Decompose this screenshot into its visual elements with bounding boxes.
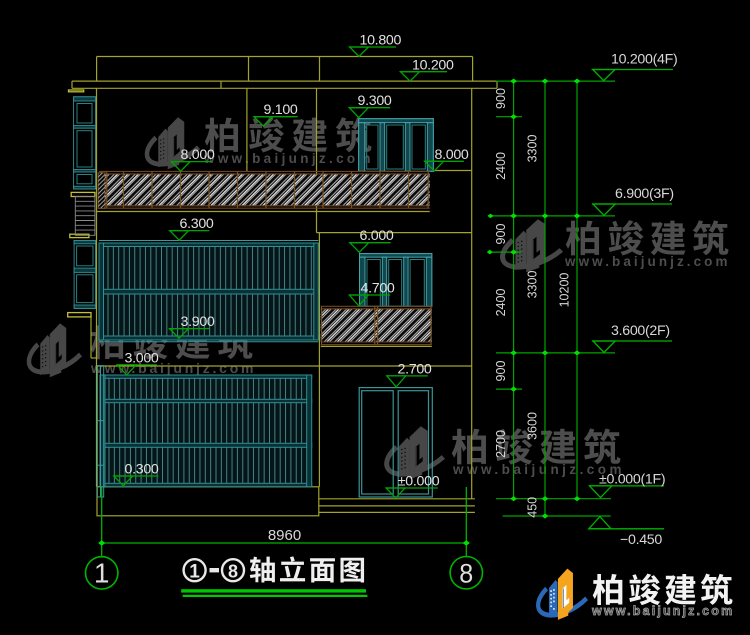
svg-text:3.900: 3.900 bbox=[181, 314, 215, 330]
svg-text:www.baijunjz.com: www.baijunjz.com bbox=[452, 462, 623, 477]
svg-text:8: 8 bbox=[459, 558, 473, 589]
svg-text:3300: 3300 bbox=[526, 271, 540, 299]
svg-text:3600: 3600 bbox=[526, 412, 540, 440]
svg-text:6.900(3F): 6.900(3F) bbox=[615, 186, 674, 202]
svg-text:2700: 2700 bbox=[494, 430, 508, 458]
svg-text:2400: 2400 bbox=[494, 152, 508, 180]
svg-text:9.100: 9.100 bbox=[264, 102, 298, 118]
svg-text:6.300: 6.300 bbox=[180, 216, 214, 232]
svg-text:10.200: 10.200 bbox=[412, 57, 454, 73]
svg-text:10.200(4F): 10.200(4F) bbox=[611, 52, 677, 68]
svg-text:900: 900 bbox=[494, 88, 508, 109]
svg-text:www.baijunjz.com: www.baijunjz.com bbox=[90, 360, 255, 376]
svg-text:2.700: 2.700 bbox=[398, 361, 432, 377]
svg-text:8.000: 8.000 bbox=[435, 147, 469, 163]
svg-text:6.000: 6.000 bbox=[360, 228, 394, 244]
svg-text:1: 1 bbox=[189, 562, 200, 583]
svg-text:8.000: 8.000 bbox=[181, 147, 215, 163]
svg-text:±0.000(1F): ±0.000(1F) bbox=[599, 472, 665, 488]
svg-text:4.700: 4.700 bbox=[361, 281, 395, 297]
svg-text:450: 450 bbox=[526, 497, 540, 518]
svg-text:900: 900 bbox=[494, 224, 508, 245]
svg-text:www.baijunjz.com: www.baijunjz.com bbox=[591, 604, 733, 618]
svg-text:9.300: 9.300 bbox=[358, 93, 392, 109]
svg-text:www.baijunjz.com: www.baijunjz.com bbox=[203, 151, 372, 166]
svg-text:−0.450: −0.450 bbox=[620, 532, 662, 548]
svg-text:3300: 3300 bbox=[526, 135, 540, 163]
svg-text:1: 1 bbox=[94, 558, 110, 589]
svg-text:±0.000: ±0.000 bbox=[398, 474, 440, 490]
svg-text:3.000: 3.000 bbox=[125, 350, 159, 366]
svg-text:0.300: 0.300 bbox=[125, 462, 159, 478]
svg-text:900: 900 bbox=[494, 361, 508, 382]
svg-text:www.baijunjz.com: www.baijunjz.com bbox=[564, 254, 729, 269]
svg-text:8960: 8960 bbox=[268, 527, 301, 544]
svg-text:3.600(2F): 3.600(2F) bbox=[611, 323, 670, 339]
svg-text:10200: 10200 bbox=[558, 273, 572, 308]
svg-text:8: 8 bbox=[228, 562, 238, 582]
svg-text:2400: 2400 bbox=[494, 289, 508, 317]
svg-text:10.800: 10.800 bbox=[360, 33, 402, 49]
